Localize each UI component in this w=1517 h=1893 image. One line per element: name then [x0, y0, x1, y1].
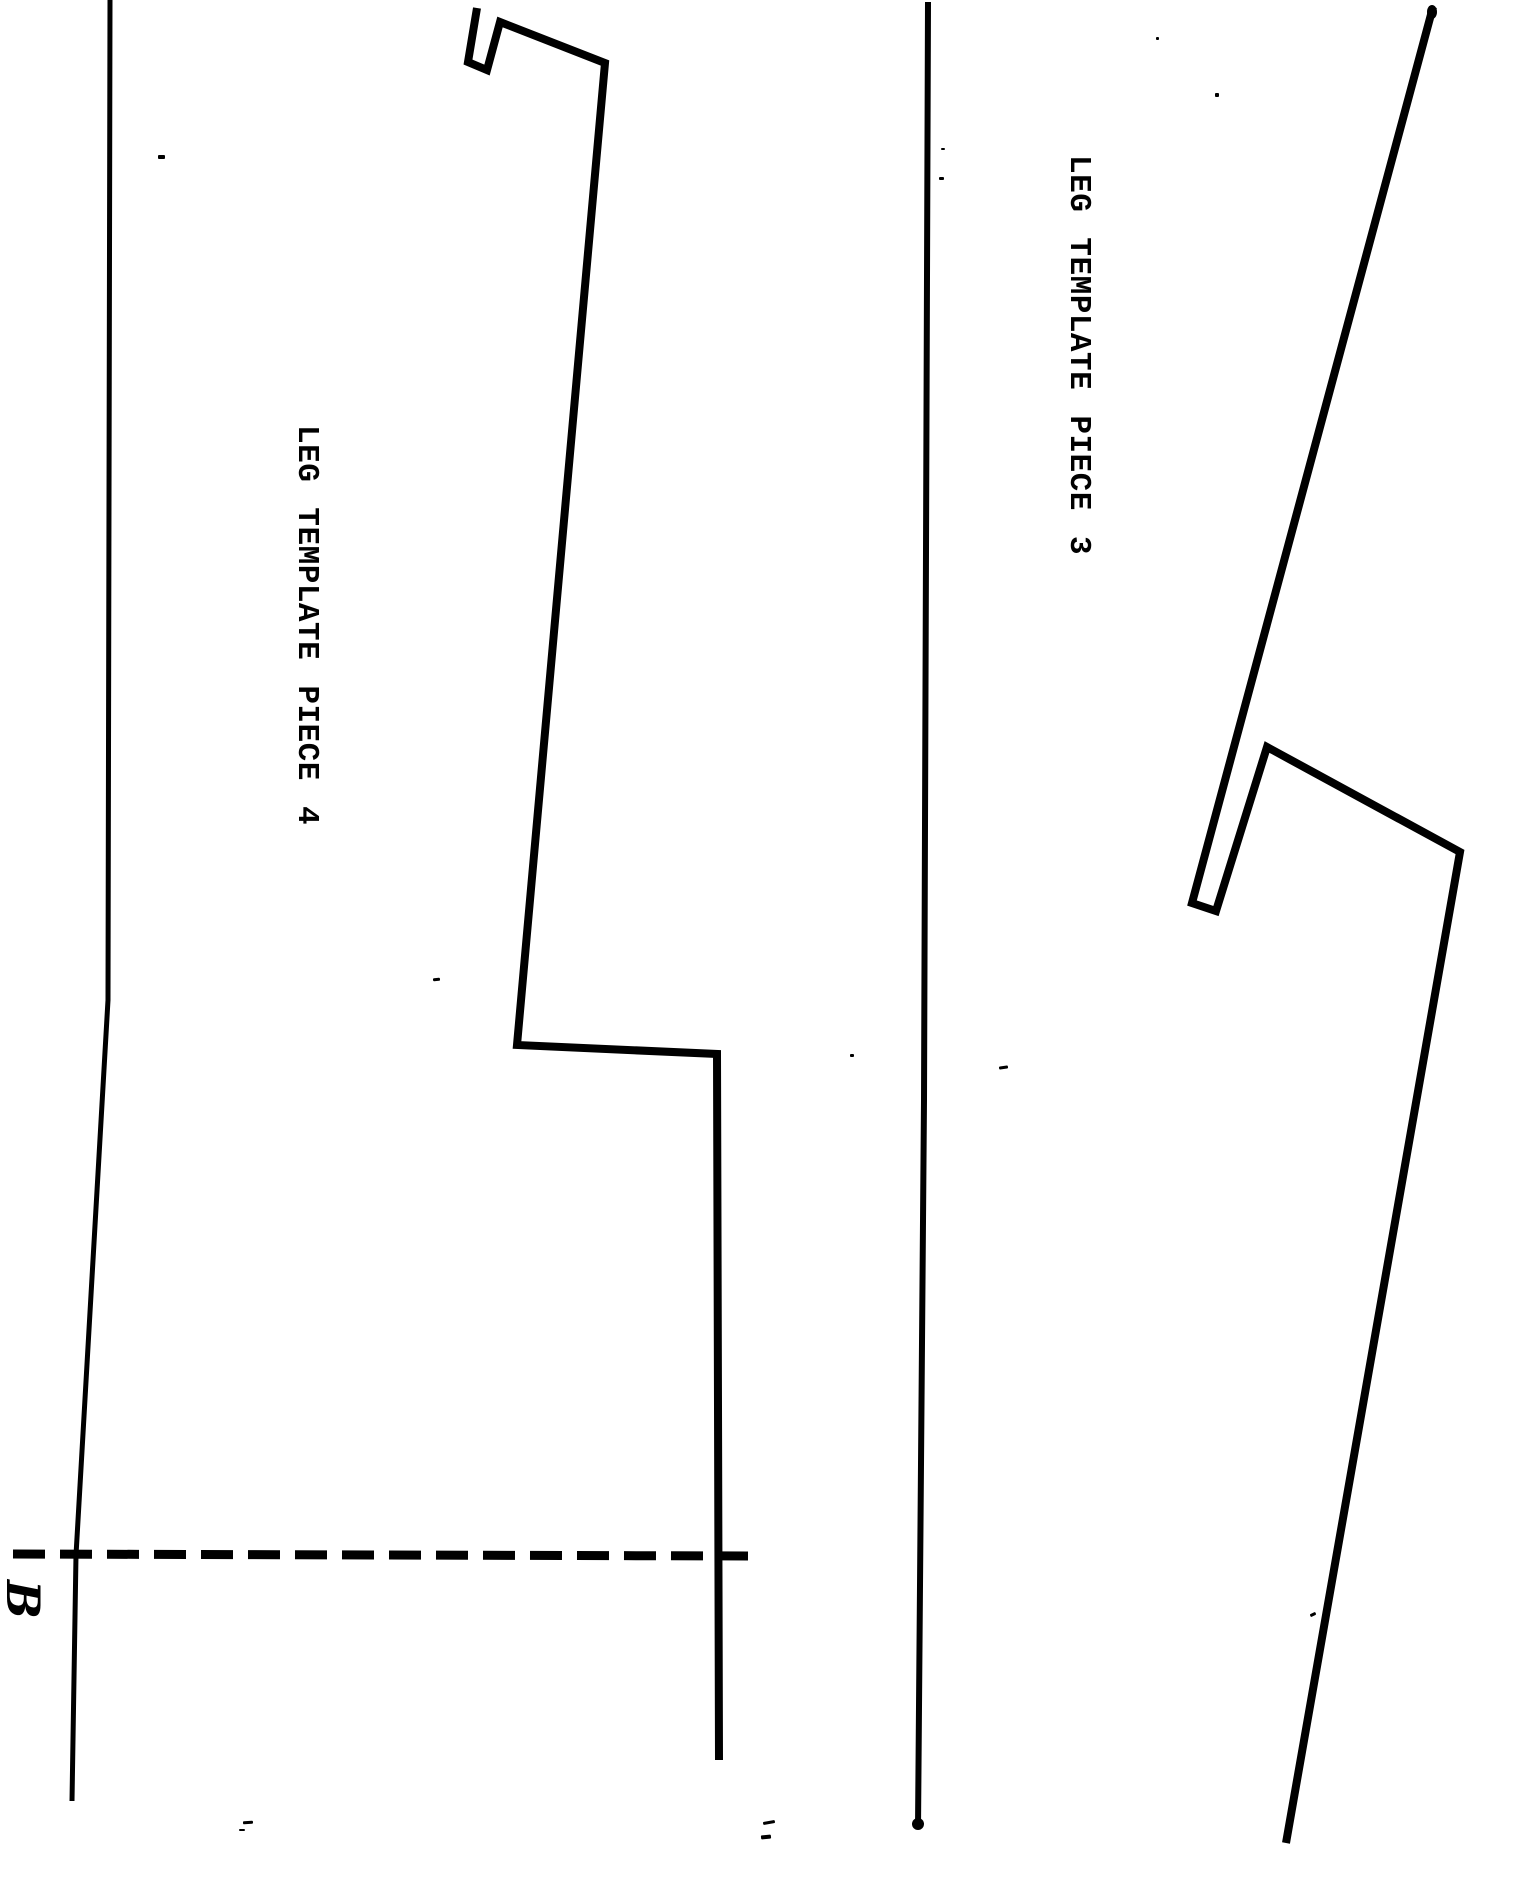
scan-speck [1156, 37, 1159, 40]
center-page-rule [918, 2, 928, 1828]
piece4-outline [468, 8, 719, 1760]
scan-speck [939, 177, 944, 180]
scan-speck [158, 155, 165, 159]
piece4-cut-dashed-line [13, 1554, 748, 1556]
piece3-outline [1192, 7, 1460, 1843]
page: LEG TEMPLATE PIECE 3 LEG TEMPLATE PIECE … [0, 0, 1517, 1893]
diagram-svg [0, 0, 1517, 1893]
center-rule-foot-blob [912, 1818, 924, 1830]
left-page-rule [72, 0, 110, 1801]
scan-speck [433, 978, 440, 982]
scan-speck [941, 148, 945, 150]
piece4-label: LEG TEMPLATE PIECE 4 [289, 425, 323, 825]
scan-speck [850, 1054, 854, 1057]
piece3-tip-blob [1427, 5, 1437, 19]
scan-speck [1215, 93, 1219, 97]
scan-speck [239, 1829, 245, 1831]
handwritten-b-mark: B [6, 1580, 40, 1619]
piece3-label: LEG TEMPLATE PIECE 3 [1061, 155, 1095, 555]
